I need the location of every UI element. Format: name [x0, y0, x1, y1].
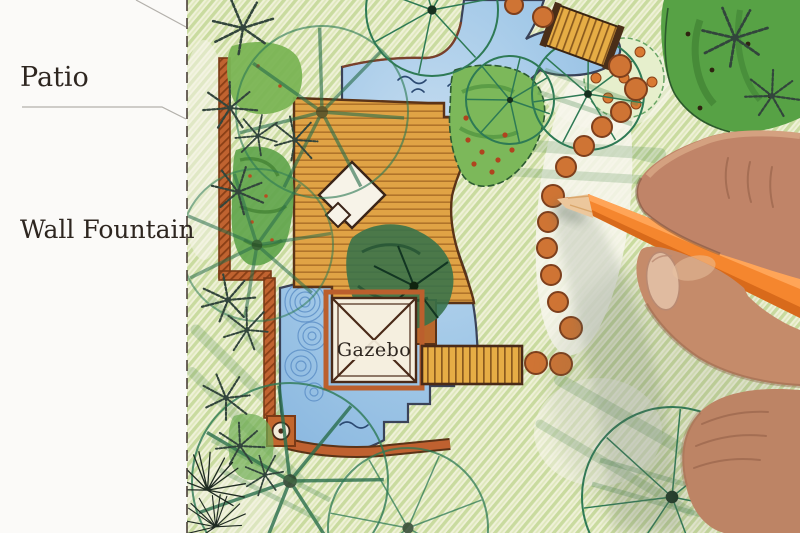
patio-label: Patio [20, 62, 89, 93]
plan-drawing: Gazebo [0, 0, 800, 533]
wall-fountain-label: Wall Fountain [20, 215, 195, 244]
boardwalk [422, 346, 522, 384]
gazebo: Gazebo [326, 292, 422, 388]
garden-plan-photo: Gazebo [0, 0, 800, 533]
gazebo-label: Gazebo [337, 339, 411, 361]
